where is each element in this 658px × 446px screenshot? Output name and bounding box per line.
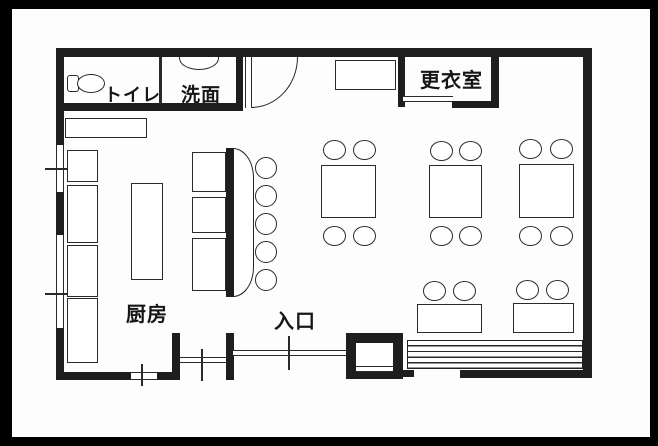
wall-stub-1 bbox=[172, 333, 180, 380]
counter-stool-5 bbox=[255, 269, 277, 291]
low-table-1 bbox=[417, 304, 482, 333]
chair bbox=[353, 226, 376, 246]
kitchen-unit-2 bbox=[67, 185, 98, 243]
chair bbox=[550, 226, 573, 246]
chair bbox=[519, 139, 542, 159]
wall-bottom-right bbox=[460, 370, 592, 378]
chair bbox=[516, 280, 539, 300]
kitchen-label: 厨房 bbox=[126, 304, 168, 324]
kitchen-window-tick bbox=[141, 364, 143, 386]
washroom-label: 洗面 bbox=[181, 86, 221, 105]
bench-seat bbox=[407, 340, 583, 369]
toilet-label: トイレ bbox=[104, 87, 161, 105]
kitchen-unit-1 bbox=[67, 150, 98, 182]
dining-table-1 bbox=[321, 165, 376, 218]
chair bbox=[459, 141, 482, 161]
kitchen-unit-4 bbox=[67, 298, 98, 363]
wall-bottom-piece bbox=[403, 370, 414, 377]
entrance-window-tick bbox=[288, 336, 290, 370]
kitchen-bottom-window bbox=[131, 372, 157, 380]
vestibule-entry-door bbox=[356, 366, 393, 372]
wall-left-middle bbox=[56, 192, 64, 235]
wall-shelf bbox=[335, 60, 396, 90]
chair bbox=[546, 280, 569, 300]
window-left-2 bbox=[56, 235, 64, 328]
chair bbox=[459, 226, 482, 246]
kitchen-shelf bbox=[65, 118, 147, 138]
floor-plan-photo: トイレ 洗面 更衣室 厨房 入口 bbox=[0, 0, 658, 446]
entrance-front-window bbox=[233, 350, 347, 356]
kitchen-counter-unit-1 bbox=[192, 152, 226, 192]
changing-room-bottom-wall bbox=[452, 101, 499, 108]
chair bbox=[423, 281, 446, 301]
washroom-right-wall bbox=[236, 57, 243, 110]
wall-right bbox=[583, 48, 592, 378]
chair bbox=[453, 281, 476, 301]
kitchen-unit-3 bbox=[67, 245, 98, 297]
toilet-bowl bbox=[77, 74, 105, 93]
kitchen-counter-unit-3 bbox=[192, 238, 226, 291]
kitchen-island bbox=[131, 183, 163, 280]
wall-left-upper bbox=[56, 48, 64, 145]
changing-room-sliding-door bbox=[403, 96, 453, 102]
chair bbox=[353, 140, 376, 160]
low-table-2 bbox=[513, 303, 574, 333]
dining-table-2 bbox=[429, 165, 482, 218]
counter-stool-2 bbox=[255, 185, 277, 207]
kitchen-counter-unit-2 bbox=[192, 197, 226, 233]
chair bbox=[550, 139, 573, 159]
chair bbox=[430, 226, 453, 246]
wall-top bbox=[56, 48, 592, 57]
service-door-tick bbox=[201, 349, 203, 381]
counter bbox=[233, 148, 254, 297]
chair bbox=[323, 140, 346, 160]
service-door-window bbox=[180, 357, 227, 363]
chair bbox=[323, 226, 346, 246]
counter-stool-1 bbox=[255, 157, 277, 179]
entrance-label: 入口 bbox=[274, 311, 316, 331]
chair bbox=[430, 141, 453, 161]
counter-stool-3 bbox=[255, 213, 277, 235]
wall-bottom-kitchen bbox=[56, 372, 180, 380]
wall-stub-2 bbox=[226, 333, 234, 380]
changing-room-label: 更衣室 bbox=[420, 70, 483, 90]
chair bbox=[519, 226, 542, 246]
dining-table-3 bbox=[519, 164, 574, 218]
counter-stool-4 bbox=[255, 241, 277, 263]
